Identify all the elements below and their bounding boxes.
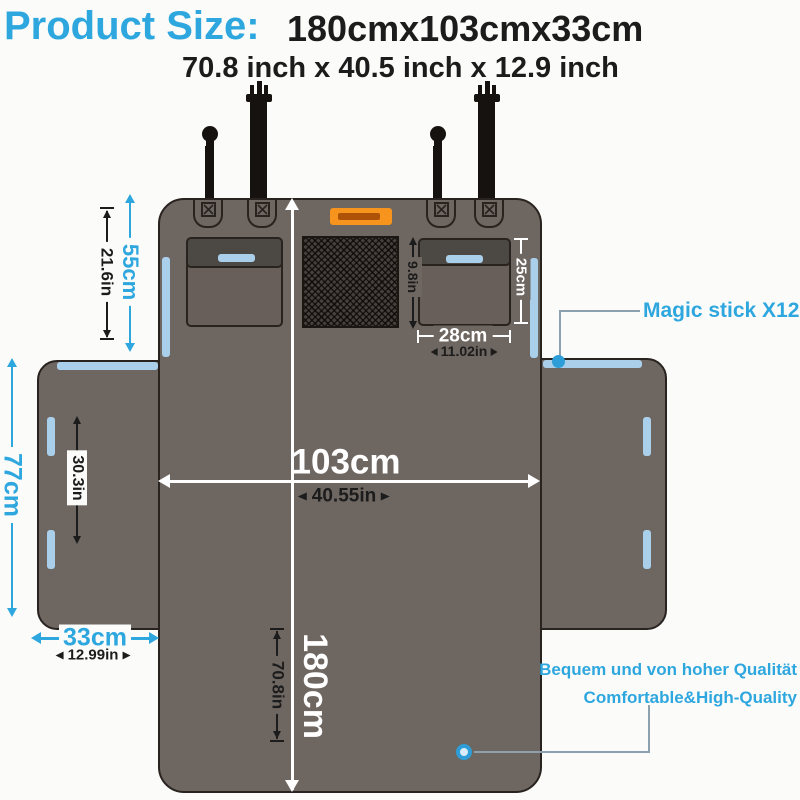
dim-21in-endbar [100, 207, 114, 209]
arrow-down-icon [7, 608, 17, 617]
dim-1299in-label: 12.99in [56, 648, 131, 663]
left-side-flap [37, 360, 160, 630]
dim-708in-endbar [270, 740, 284, 742]
buckle-anchor-icon [255, 202, 270, 217]
buckle-tab [247, 200, 277, 228]
left-flap-top-stripe [57, 362, 158, 370]
quality-text-en: Comfortable&High-Quality [584, 688, 797, 708]
buckle-tab [426, 200, 456, 228]
arrow-down-icon [73, 536, 81, 544]
callout-connector [560, 310, 640, 312]
callout-connector [648, 705, 650, 753]
left-flap-stripe [47, 530, 55, 569]
arrow-right-icon [490, 348, 497, 356]
arrow-up-icon [125, 194, 135, 203]
arrow-down-icon [273, 731, 281, 739]
size-imperial-text: 70.8 inch x 40.5 inch x 12.9 inch [182, 52, 619, 85]
dim-4055in-label: 40.55in [298, 487, 390, 506]
left-pocket-flap [186, 237, 283, 268]
left-pocket-stripe [218, 254, 255, 262]
headrest-strap-left-inner [205, 146, 214, 200]
page-title: Product Size: [4, 4, 260, 49]
edge-stripe-left [162, 257, 170, 357]
dim-25cm-endbar [514, 322, 528, 324]
arrow-right-icon [149, 632, 159, 644]
dim-103cm-label: 103cm [292, 445, 401, 480]
headrest-strap-right-inner [433, 146, 442, 200]
arrow-up-icon [273, 631, 281, 639]
buckle-tab [193, 200, 223, 228]
dim-180cm-line [291, 201, 294, 790]
headrest-strap-left-outer [250, 100, 267, 200]
dim-77cm-label: 77cm [0, 447, 27, 523]
left-flap-stripe [47, 417, 55, 456]
dim-180cm-label: 180cm [298, 633, 332, 739]
anchor-ring-icon [456, 744, 472, 760]
mesh-window [302, 236, 399, 328]
right-flap-stripe [643, 530, 651, 569]
arrow-down-icon [409, 321, 417, 329]
magic-stick-label: Magic stick X12 [643, 299, 799, 323]
right-pocket-stripe [446, 255, 483, 263]
arrow-right-icon [381, 492, 390, 500]
dim-55cm-label: 55cm [117, 238, 143, 306]
dim-25cm-endbar [514, 238, 528, 240]
arrow-up-icon [73, 416, 81, 424]
buckle-anchor-icon [434, 202, 449, 217]
buckle-tab [474, 200, 504, 228]
arrow-down-icon [285, 780, 299, 792]
dim-1102in-label: 11.02in [431, 344, 498, 358]
callout-connector [474, 751, 650, 753]
dim-303in-label: 30.3in [67, 450, 87, 505]
product-size-diagram: Product Size: 180cmx103cmx33cm 70.8 inch… [0, 0, 800, 800]
dim-98in-label: 9.8in [404, 257, 422, 297]
arrow-up-icon [409, 237, 417, 245]
buckle-anchor-icon [482, 202, 497, 217]
arrow-left-icon [31, 632, 41, 644]
callout-connector [559, 310, 561, 357]
arrow-left-icon [56, 652, 64, 660]
size-metric-text: 180cmx103cmx33cm [287, 8, 643, 50]
brand-tag-text-blur [338, 213, 380, 220]
arrow-down-icon [103, 330, 111, 338]
dim-28cm-endbar [509, 330, 511, 343]
dim-25cm-label: 25cm [512, 254, 531, 300]
dim-21in-endbar [100, 338, 114, 340]
arrow-right-icon [528, 474, 540, 488]
anchor-dot-icon [552, 355, 565, 368]
right-side-flap [540, 358, 667, 630]
dim-28cm-endbar [417, 330, 419, 343]
buckle-anchor-icon [201, 202, 216, 217]
right-flap-stripe [643, 417, 651, 456]
dim-708in-endbar [270, 628, 284, 630]
arrow-right-icon [122, 652, 130, 660]
headrest-strap-right-outer [478, 100, 495, 200]
arrow-up-icon [285, 198, 299, 210]
arrow-left-icon [431, 348, 438, 356]
arrow-down-icon [125, 343, 135, 352]
quality-text-de: Bequem und von hoher Qualität [539, 660, 797, 680]
dim-708in-label: 70.8in [268, 656, 289, 714]
arrow-up-icon [7, 358, 17, 367]
dim-21in-label: 21.6in [97, 242, 118, 302]
brand-tag [330, 208, 392, 225]
arrow-left-icon [298, 492, 307, 500]
edge-stripe-right [530, 258, 538, 358]
arrow-left-icon [158, 474, 170, 488]
arrow-up-icon [103, 210, 111, 218]
